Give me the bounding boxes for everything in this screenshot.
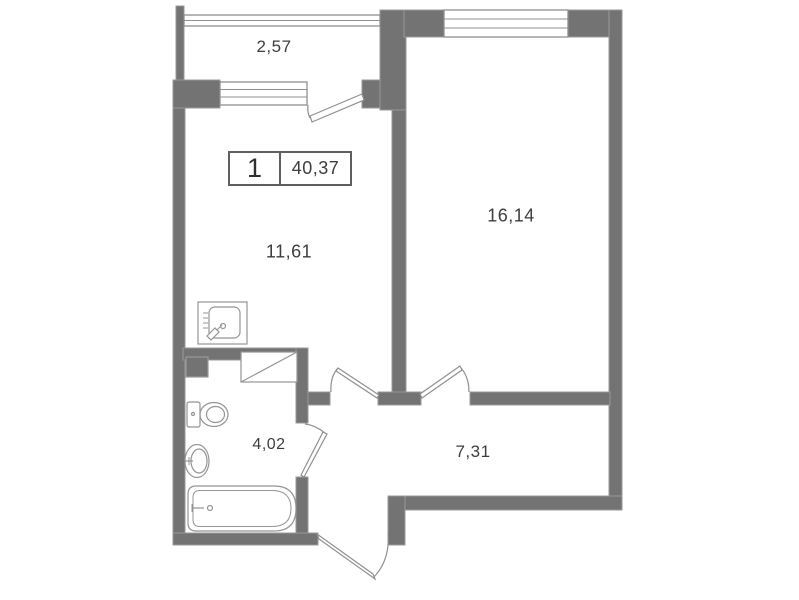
wall-entrance-step bbox=[388, 496, 405, 545]
wall-bedroom-top-left-arm bbox=[404, 10, 444, 37]
vent-shaft bbox=[241, 352, 297, 382]
wall-left-exterior bbox=[173, 80, 185, 545]
area-label-bathroom: 4,02 bbox=[252, 436, 285, 454]
kitchen-sink bbox=[198, 302, 247, 344]
entrance-door-swing-arc bbox=[374, 534, 388, 577]
wall-divider-top bbox=[380, 10, 406, 110]
kitchen-window bbox=[220, 82, 307, 105]
bedroom-door-leaf bbox=[420, 366, 462, 398]
bathroom-door-leaf bbox=[301, 432, 327, 477]
wall-balcony-left bbox=[176, 6, 184, 84]
duct-block bbox=[186, 357, 208, 377]
bedroom-window bbox=[444, 10, 568, 37]
toilet bbox=[187, 402, 228, 427]
balcony-door-leaf bbox=[310, 94, 364, 122]
wall-bathroom-bottom bbox=[173, 533, 318, 545]
bathroom-door bbox=[301, 424, 327, 477]
wall-hall-mid-segment bbox=[378, 392, 421, 405]
fixtures bbox=[185, 302, 297, 531]
washbasin bbox=[185, 445, 209, 478]
balcony-door bbox=[308, 94, 364, 122]
unit-total-area: 40,37 bbox=[281, 153, 350, 184]
wall-bathroom-right-lower bbox=[296, 477, 308, 533]
wall-divider-kitchen-bedroom bbox=[392, 110, 406, 405]
bathroom-door-swing-arc bbox=[305, 424, 325, 433]
wall-hall-right-segment bbox=[470, 392, 610, 405]
floor-plan-drawing bbox=[0, 0, 799, 600]
floor-plan: 2,57 11,61 16,14 4,02 7,31 1 40,37 bbox=[0, 0, 799, 600]
kitchen-door bbox=[331, 368, 379, 398]
area-label-balcony: 2,57 bbox=[256, 37, 291, 57]
unit-info-badge: 1 40,37 bbox=[228, 151, 352, 186]
balcony-glazing bbox=[184, 15, 380, 26]
kitchen-door-swing-arc bbox=[331, 369, 337, 392]
entrance-door-leaf bbox=[317, 534, 375, 579]
kitchen-door-leaf bbox=[336, 368, 379, 398]
wall-right-exterior bbox=[609, 10, 622, 510]
entrance-door bbox=[317, 534, 388, 579]
bathtub bbox=[188, 486, 296, 531]
bedroom-door bbox=[420, 366, 469, 398]
area-label-kitchen-living: 11,61 bbox=[266, 242, 312, 263]
unit-rooms-count: 1 bbox=[230, 153, 281, 184]
wall-pier-kitchen-window-left bbox=[173, 80, 220, 108]
area-label-hallway: 7,31 bbox=[455, 442, 490, 462]
wall-bathroom-right-upper bbox=[296, 348, 308, 423]
balcony-door-swing-arc bbox=[308, 105, 310, 118]
bedroom-door-swing-arc bbox=[461, 368, 469, 392]
wall-bottom-right bbox=[404, 496, 622, 510]
area-label-bedroom: 16,14 bbox=[487, 206, 535, 227]
